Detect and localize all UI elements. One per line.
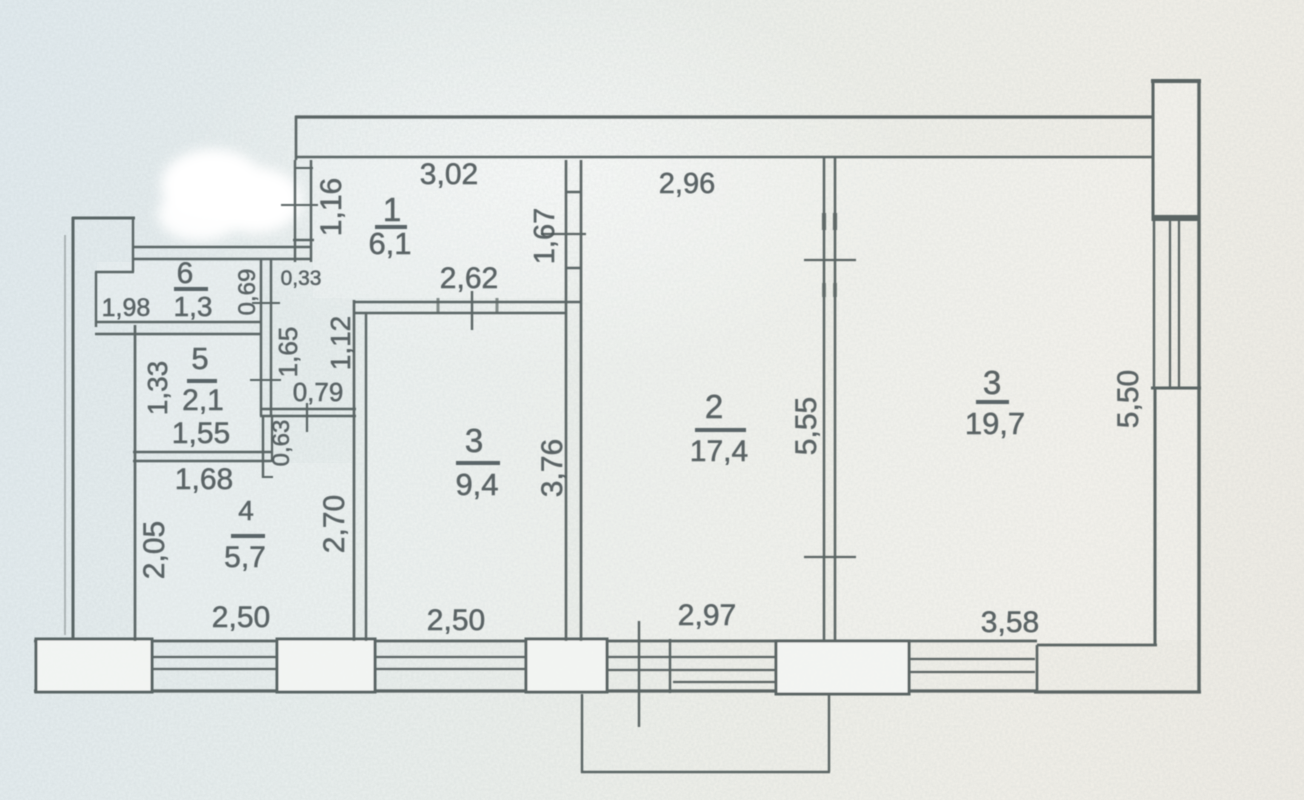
svg-text:1,12: 1,12	[325, 316, 356, 371]
svg-text:1,68: 1,68	[175, 463, 233, 496]
svg-text:1,98: 1,98	[102, 294, 151, 322]
svg-text:3,02: 3,02	[420, 158, 478, 191]
svg-text:3,76: 3,76	[536, 439, 569, 497]
svg-text:1,67: 1,67	[529, 208, 561, 264]
svg-text:1: 1	[383, 191, 401, 228]
svg-text:2,97: 2,97	[678, 599, 736, 632]
svg-text:1,16: 1,16	[315, 178, 348, 236]
svg-text:17,4: 17,4	[690, 435, 748, 468]
svg-text:2,1: 2,1	[182, 384, 224, 417]
svg-text:6: 6	[177, 257, 194, 290]
svg-text:0,63: 0,63	[268, 420, 295, 467]
svg-text:3,58: 3,58	[981, 606, 1039, 639]
svg-text:5,7: 5,7	[224, 541, 266, 574]
svg-text:3: 3	[465, 422, 483, 459]
svg-text:6,1: 6,1	[368, 226, 411, 261]
svg-text:2,05: 2,05	[138, 521, 171, 579]
svg-text:2,62: 2,62	[440, 262, 498, 295]
svg-text:2,96: 2,96	[659, 168, 715, 200]
svg-text:0,33: 0,33	[281, 267, 322, 290]
svg-text:1,65: 1,65	[273, 327, 303, 378]
svg-text:1,55: 1,55	[172, 417, 230, 450]
svg-text:0,69: 0,69	[234, 269, 261, 316]
svg-text:4: 4	[238, 495, 254, 526]
svg-text:1,3: 1,3	[174, 291, 213, 322]
svg-text:0,79: 0,79	[293, 377, 344, 407]
svg-text:2,50: 2,50	[427, 604, 485, 637]
svg-text:2,50: 2,50	[212, 601, 270, 634]
svg-text:1,33: 1,33	[142, 361, 173, 416]
svg-text:3: 3	[983, 364, 1001, 401]
svg-text:19,7: 19,7	[965, 406, 1025, 441]
svg-text:5: 5	[191, 341, 208, 376]
svg-text:2,70: 2,70	[318, 495, 351, 553]
svg-text:5,50: 5,50	[1112, 370, 1145, 428]
svg-text:5,55: 5,55	[790, 397, 823, 455]
svg-text:2: 2	[705, 388, 723, 425]
svg-text:9,4: 9,4	[455, 467, 498, 502]
